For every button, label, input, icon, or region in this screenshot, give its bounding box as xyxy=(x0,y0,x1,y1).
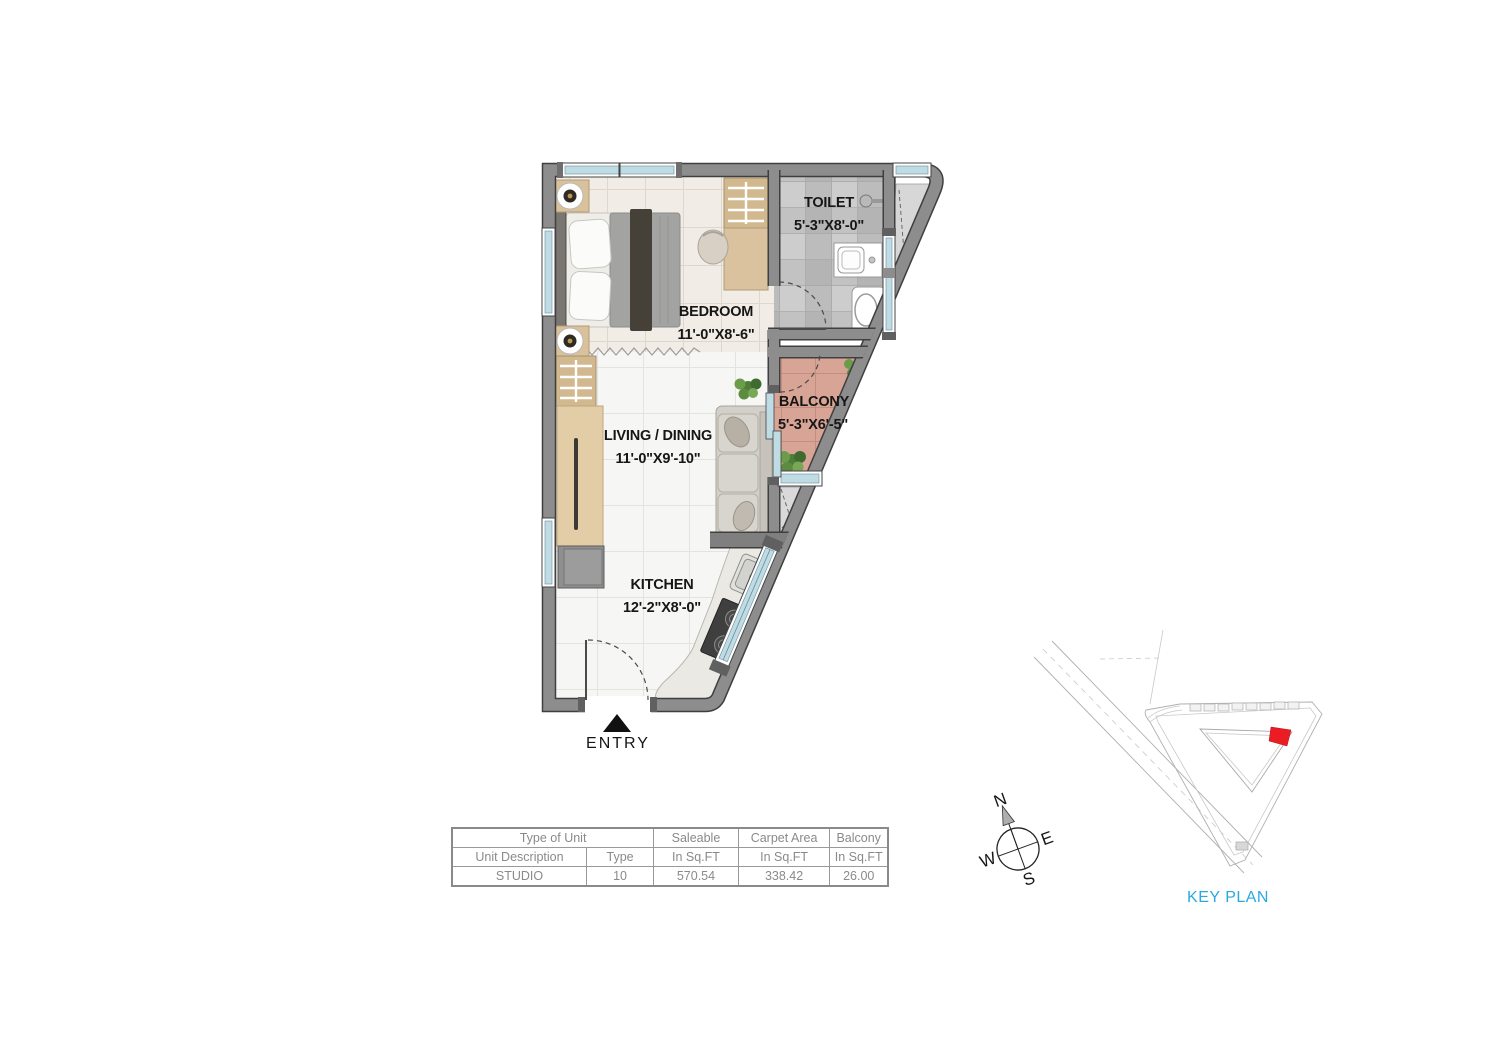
keyplan-site-boundary xyxy=(1145,702,1322,866)
compass-north: N xyxy=(991,789,1009,811)
cell-balcony: 26.00 xyxy=(830,867,888,887)
refrigerator xyxy=(558,546,604,588)
window-left-lower xyxy=(542,518,555,587)
cell-carpet-area: 338.42 xyxy=(738,867,830,887)
pillow xyxy=(568,219,611,270)
cell-type: 10 xyxy=(586,867,653,887)
window-top-right xyxy=(893,163,931,177)
keyplan-unit-marker xyxy=(1269,727,1291,746)
unit-info-table: Type of Unit Saleable Carpet Area Balcon… xyxy=(451,827,889,887)
entry-arrow-icon xyxy=(603,714,631,732)
col-type-of-unit: Type of Unit xyxy=(452,828,654,848)
window-bedroom-top xyxy=(557,162,682,178)
living-dims: 11'-0"X9'-10" xyxy=(616,451,701,467)
bed-throw xyxy=(630,209,652,331)
cell-unit-description: STUDIO xyxy=(452,867,586,887)
nightstand-bottom xyxy=(553,326,589,356)
col-saleable-unit: In Sq.FT xyxy=(654,848,739,867)
keyplan-label: KEY PLAN xyxy=(1187,889,1269,906)
balcony-label: BALCONY xyxy=(779,394,850,410)
table-subheader-row: Unit Description Type In Sq.FT In Sq.FT … xyxy=(452,848,888,867)
window-balcony-rail xyxy=(778,471,822,486)
sofa xyxy=(716,406,772,538)
toilet-dims: 5'-3"X8'-0" xyxy=(794,218,864,234)
bedroom-label: BEDROOM xyxy=(679,304,753,320)
entry-label: ENTRY xyxy=(586,735,650,752)
bedroom-chair xyxy=(698,230,728,264)
entry-opening xyxy=(585,696,651,714)
pillow xyxy=(569,271,611,321)
compass: N E S W xyxy=(959,779,1066,902)
col-balcony: Balcony xyxy=(830,828,888,848)
bed xyxy=(550,209,680,331)
wall-end-cap xyxy=(650,697,657,712)
bedroom-dims: 11'-0"X8'-6" xyxy=(677,327,754,343)
floor-plan-canvas: TOILET 5'-3"X8'-0" BEDROOM 11'-0"X8'-6" … xyxy=(0,0,1500,1060)
window-left-upper xyxy=(542,228,555,316)
col-carpet-area: Carpet Area xyxy=(738,828,830,848)
table-header-row: Type of Unit Saleable Carpet Area Balcon… xyxy=(452,828,888,848)
col-saleable: Saleable xyxy=(654,828,739,848)
floorplan-page: TOILET 5'-3"X8'-0" BEDROOM 11'-0"X8'-6" … xyxy=(0,0,1500,1060)
kitchen-label: KITCHEN xyxy=(630,577,693,593)
table-data-row: STUDIO 10 570.54 338.42 26.00 xyxy=(452,867,888,887)
living-label: LIVING / DINING xyxy=(604,428,712,444)
col-type: Type xyxy=(586,848,653,867)
wardrobe-bedroom xyxy=(724,178,768,228)
compass-west: W xyxy=(977,848,999,871)
col-unit-description: Unit Description xyxy=(452,848,586,867)
window-toilet xyxy=(882,228,896,340)
kitchen-dims: 12'-2"X8'-0" xyxy=(623,600,701,616)
bedroom-desk xyxy=(724,228,768,290)
key-plan: KEY PLAN xyxy=(1034,630,1322,906)
wall-end-cap xyxy=(578,697,585,712)
col-carpet-unit: In Sq.FT xyxy=(738,848,830,867)
nightstand-top xyxy=(553,180,589,212)
compass-south: S xyxy=(1020,868,1037,890)
compass-east: E xyxy=(1039,828,1056,850)
balcony-dims: 5'-3"X6'-5" xyxy=(778,417,848,433)
cell-saleable: 570.54 xyxy=(654,867,739,887)
col-balcony-unit: In Sq.FT xyxy=(830,848,888,867)
toilet-wc xyxy=(834,243,882,277)
tall-cabinet xyxy=(557,406,603,546)
wardrobe-living xyxy=(556,356,596,406)
toilet-label: TOILET xyxy=(804,195,854,211)
